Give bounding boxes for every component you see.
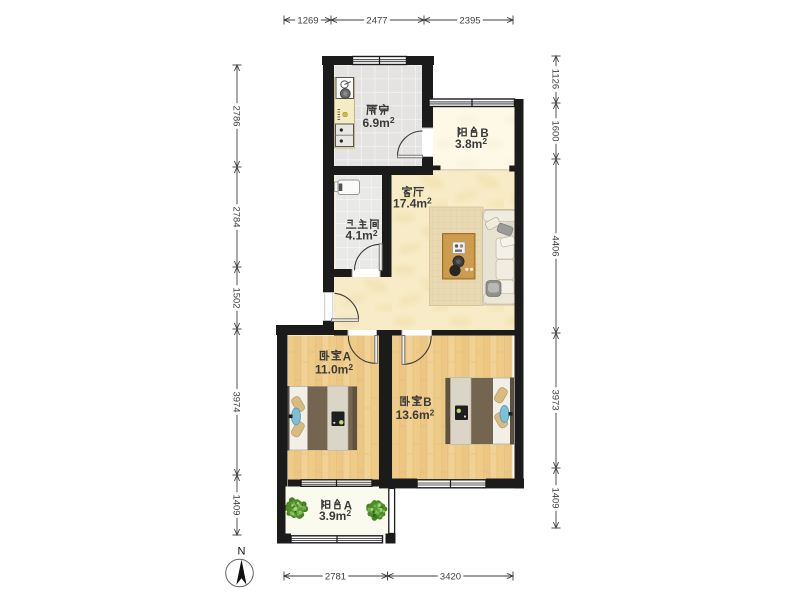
svg-text:1409: 1409 xyxy=(231,494,242,515)
svg-text:N: N xyxy=(238,546,246,558)
svg-text:11.0m2: 11.0m2 xyxy=(315,362,353,377)
svg-text:2395: 2395 xyxy=(459,15,480,26)
svg-text:1409: 1409 xyxy=(550,487,561,508)
svg-text:4406: 4406 xyxy=(550,235,561,256)
svg-text:1502: 1502 xyxy=(231,287,242,308)
svg-text:2477: 2477 xyxy=(366,15,387,26)
svg-text:2781: 2781 xyxy=(325,571,346,582)
svg-text:1126: 1126 xyxy=(550,69,561,89)
svg-text:3974: 3974 xyxy=(231,391,242,412)
svg-text:1600: 1600 xyxy=(550,120,561,141)
svg-text:17.4m2: 17.4m2 xyxy=(393,196,432,211)
svg-text:3420: 3420 xyxy=(440,571,461,582)
svg-text:1269: 1269 xyxy=(297,15,318,26)
svg-text:2784: 2784 xyxy=(231,206,242,227)
svg-text:3973: 3973 xyxy=(550,389,561,410)
svg-text:13.6m2: 13.6m2 xyxy=(396,407,435,422)
svg-text:2786: 2786 xyxy=(231,105,242,126)
